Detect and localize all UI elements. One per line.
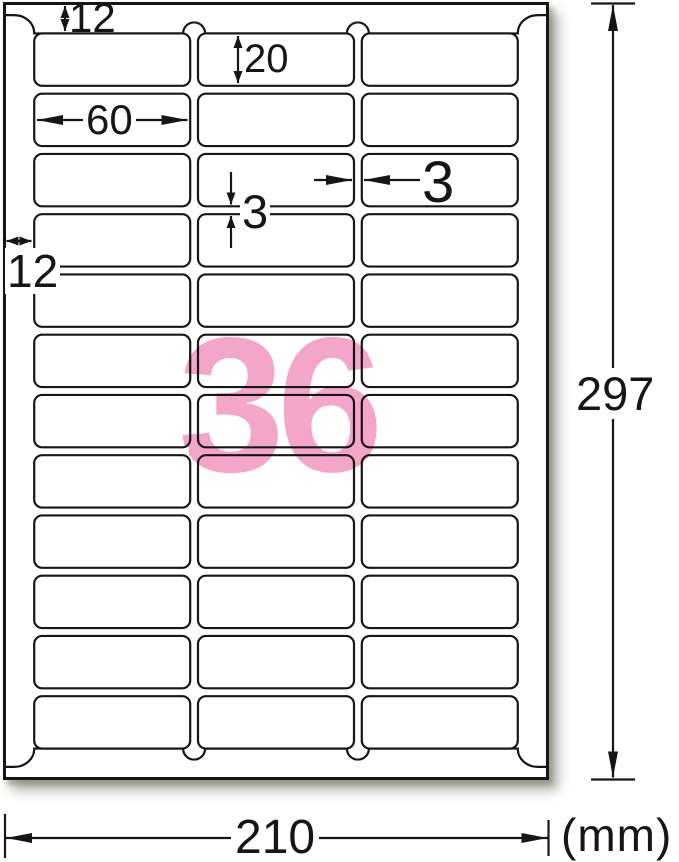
label-cell xyxy=(34,395,190,447)
label-cell xyxy=(362,214,518,266)
label-cell xyxy=(198,455,354,507)
label-cell xyxy=(34,576,190,628)
label-cell xyxy=(198,636,354,688)
dim-left-margin: 12 xyxy=(5,248,60,294)
dim-label-height: 20 xyxy=(244,39,289,79)
label-cell xyxy=(362,576,518,628)
label-cell xyxy=(362,395,518,447)
label-cell xyxy=(34,335,190,387)
label-cell xyxy=(362,515,518,567)
label-cell xyxy=(362,636,518,688)
label-cell xyxy=(198,515,354,567)
label-cell xyxy=(198,696,354,748)
label-cell xyxy=(362,94,518,146)
label-cell xyxy=(34,515,190,567)
label-cell xyxy=(362,274,518,326)
label-cell xyxy=(362,335,518,387)
label-sheet-diagram: 36 12 20 60 3 3 12 297 210 (mm) xyxy=(0,0,679,862)
dim-column-gap: 3 xyxy=(422,154,454,212)
label-cell xyxy=(34,33,190,85)
dim-page-width: 210 xyxy=(231,814,319,862)
label-cell xyxy=(362,455,518,507)
dim-top-margin: 12 xyxy=(69,0,116,39)
unit-note: (mm) xyxy=(561,812,672,858)
label-cell xyxy=(34,154,190,206)
label-cell xyxy=(198,94,354,146)
dim-page-height: 297 xyxy=(573,368,657,419)
label-cell xyxy=(198,274,354,326)
label-cell xyxy=(362,696,518,748)
dim-label-width: 60 xyxy=(83,99,136,141)
label-cell xyxy=(198,395,354,447)
label-cell xyxy=(34,636,190,688)
label-cell xyxy=(34,455,190,507)
label-cell xyxy=(198,335,354,387)
label-cell xyxy=(34,696,190,748)
bottom-cut-line xyxy=(4,749,548,767)
label-cell xyxy=(198,214,354,266)
label-cell xyxy=(362,33,518,85)
label-cell xyxy=(198,576,354,628)
dim-row-gap: 3 xyxy=(240,188,270,235)
